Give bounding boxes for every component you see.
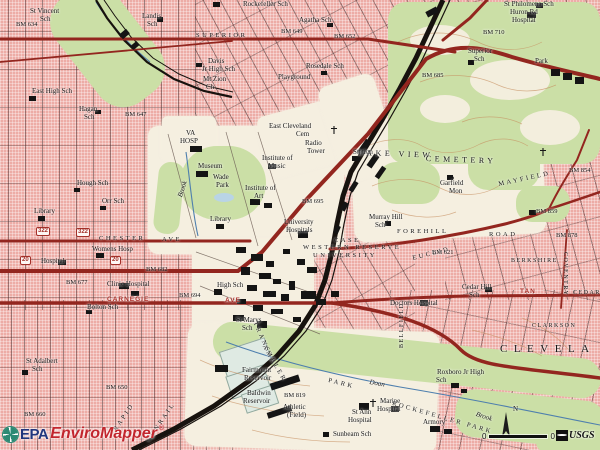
epa-logo-icon bbox=[3, 427, 18, 442]
usgs-logo-icon bbox=[556, 430, 568, 441]
envirompper-topo-map[interactable]: St VincentSchBM 634LandisSchRockefeller … bbox=[0, 0, 600, 450]
usgs-wordmark: USGS bbox=[569, 430, 595, 441]
envirompper-wordmark: EnviroMapper bbox=[50, 425, 157, 443]
route-shield: 322 bbox=[76, 228, 90, 237]
route-shield: 20 bbox=[20, 256, 31, 265]
registered-trademark: ® bbox=[159, 425, 164, 432]
usgs-branding: USGS bbox=[556, 430, 595, 441]
scale-bar-rule bbox=[489, 435, 547, 438]
scale-left-label: 0 bbox=[482, 432, 486, 441]
route-shield: 322 bbox=[36, 227, 50, 236]
scale-bar: 0 0 bbox=[482, 432, 555, 441]
route-shield: 20 bbox=[110, 256, 121, 265]
scale-right-label: 0 bbox=[550, 432, 554, 441]
epa-envirompper-branding: EPA EnviroMapper ® bbox=[3, 424, 164, 443]
shields-layer: 3223222020 bbox=[0, 0, 600, 450]
epa-wordmark: EPA bbox=[20, 426, 48, 443]
